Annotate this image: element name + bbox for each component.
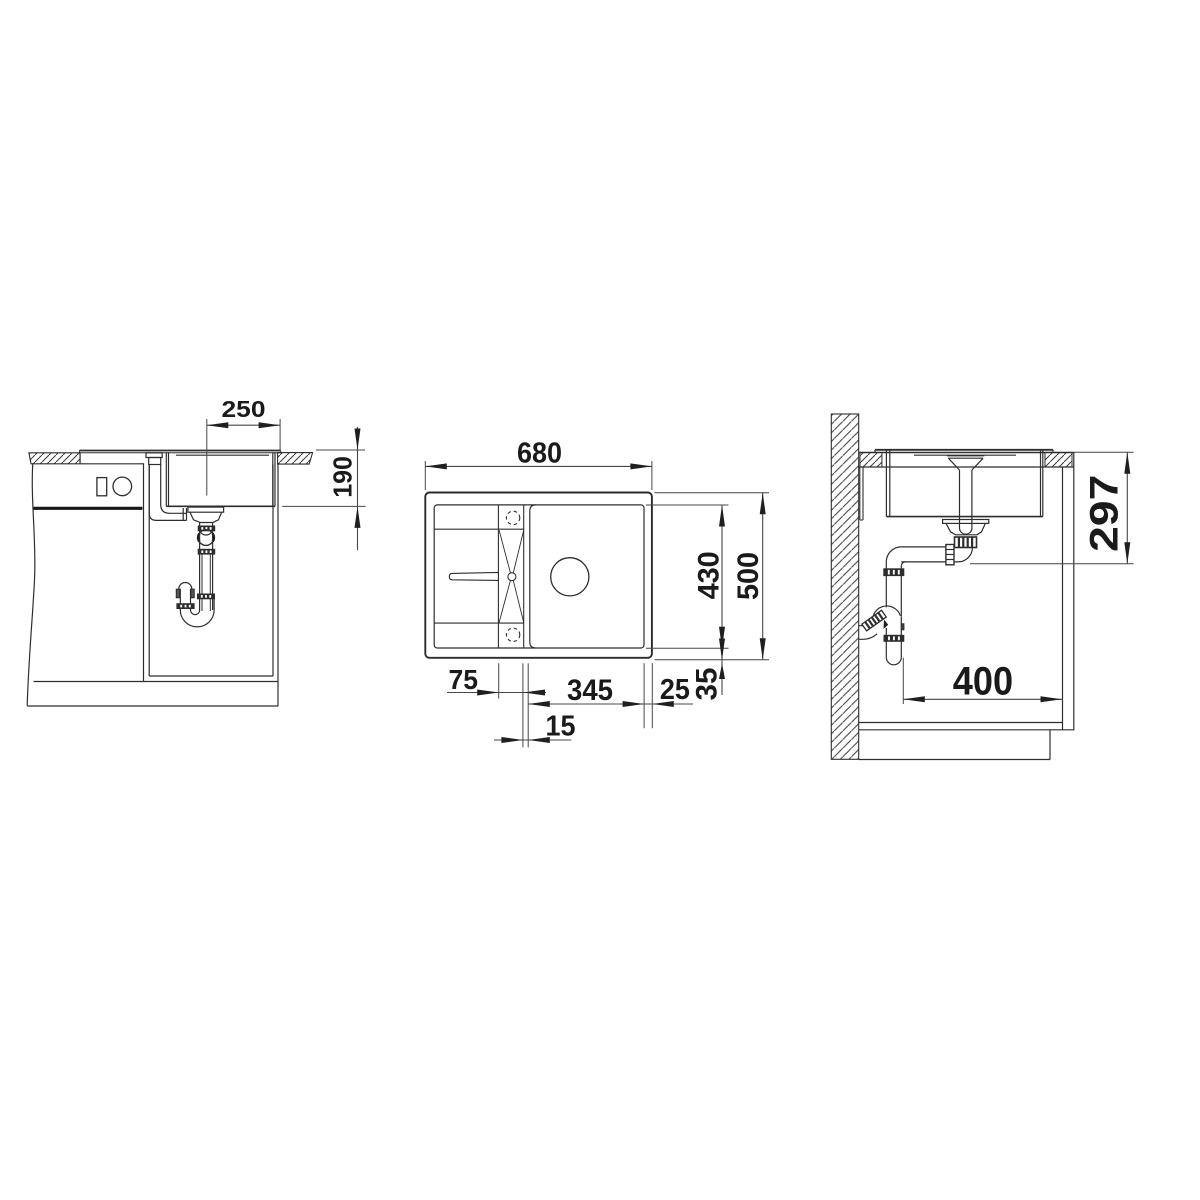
svg-text:400: 400 xyxy=(953,660,1013,704)
svg-text:25: 25 xyxy=(660,674,690,706)
svg-text:75: 75 xyxy=(449,664,479,695)
svg-text:35: 35 xyxy=(691,668,724,701)
svg-text:680: 680 xyxy=(517,437,562,469)
svg-text:190: 190 xyxy=(330,456,358,498)
svg-text:500: 500 xyxy=(732,552,765,600)
svg-text:250: 250 xyxy=(222,396,266,422)
svg-text:430: 430 xyxy=(693,551,726,599)
svg-text:297: 297 xyxy=(1083,475,1127,553)
svg-text:345: 345 xyxy=(567,674,613,707)
svg-text:15: 15 xyxy=(546,710,576,742)
